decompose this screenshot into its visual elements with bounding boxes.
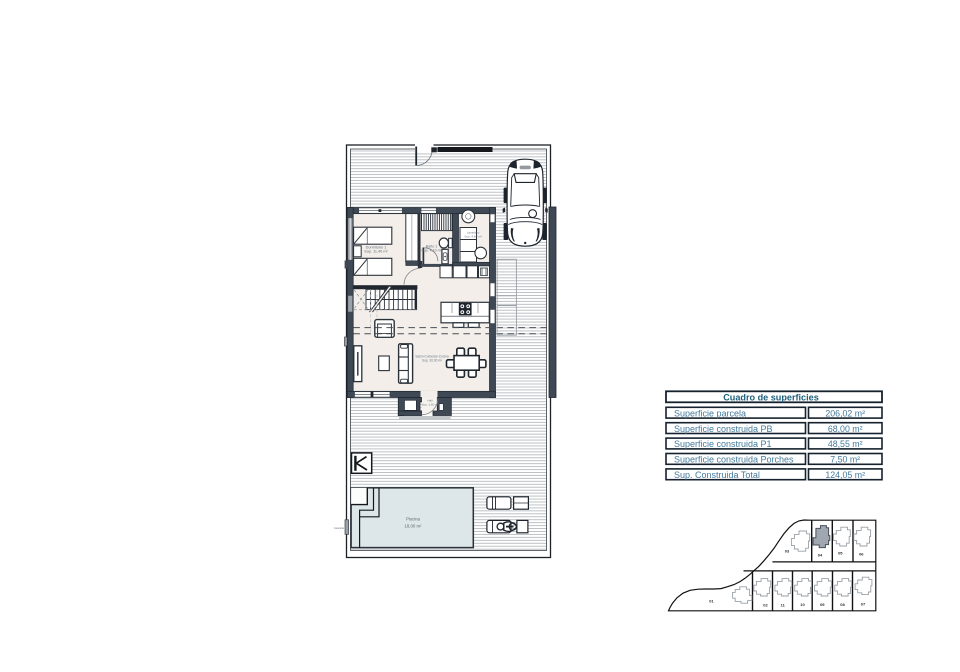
svg-text:Sup. 4,60 m²: Sup. 4,60 m² [464,234,481,238]
svg-text:Sup. 30,00 m²: Sup. 30,00 m² [422,359,442,363]
svg-text:02: 02 [763,603,768,608]
svg-text:Piscina: Piscina [406,517,420,522]
svg-text:68,00 m²: 68,00 m² [828,424,863,434]
svg-text:04: 04 [818,553,823,558]
svg-text:7,50 m²: 7,50 m² [830,455,860,465]
svg-text:10: 10 [800,602,805,607]
svg-text:01: 01 [709,599,714,604]
svg-text:Sup. 11,40 m²: Sup. 11,40 m² [364,250,388,254]
svg-text:124,05 m²: 124,05 m² [825,470,865,480]
svg-text:Superficie construida PB: Superficie construida PB [674,424,773,434]
svg-text:Sup. Construida Total: Sup. Construida Total [674,470,760,480]
svg-text:Superficie construida Porches: Superficie construida Porches [674,455,794,465]
svg-text:Cuadro de superficies: Cuadro de superficies [723,392,819,402]
svg-text:Sup. 1,60 m²: Sup. 1,60 m² [421,402,438,406]
svg-text:07: 07 [861,602,866,607]
svg-text:Superficie parcela: Superficie parcela [674,408,746,418]
svg-text:Superficie construida P1: Superficie construida P1 [674,439,772,449]
svg-text:08: 08 [840,602,845,607]
svg-text:18,00 m²: 18,00 m² [405,524,423,529]
svg-text:48,55 m²: 48,55 m² [828,439,863,449]
svg-text:Cascada: Cascada [334,526,345,530]
svg-text:06: 06 [859,552,864,557]
svg-text:Sup. 4,10 m²: Sup. 4,10 m² [421,249,442,253]
svg-text:206,02 m²: 206,02 m² [825,408,865,418]
svg-text:09: 09 [820,602,825,607]
svg-text:03: 03 [785,549,790,554]
svg-text:05: 05 [838,551,843,556]
